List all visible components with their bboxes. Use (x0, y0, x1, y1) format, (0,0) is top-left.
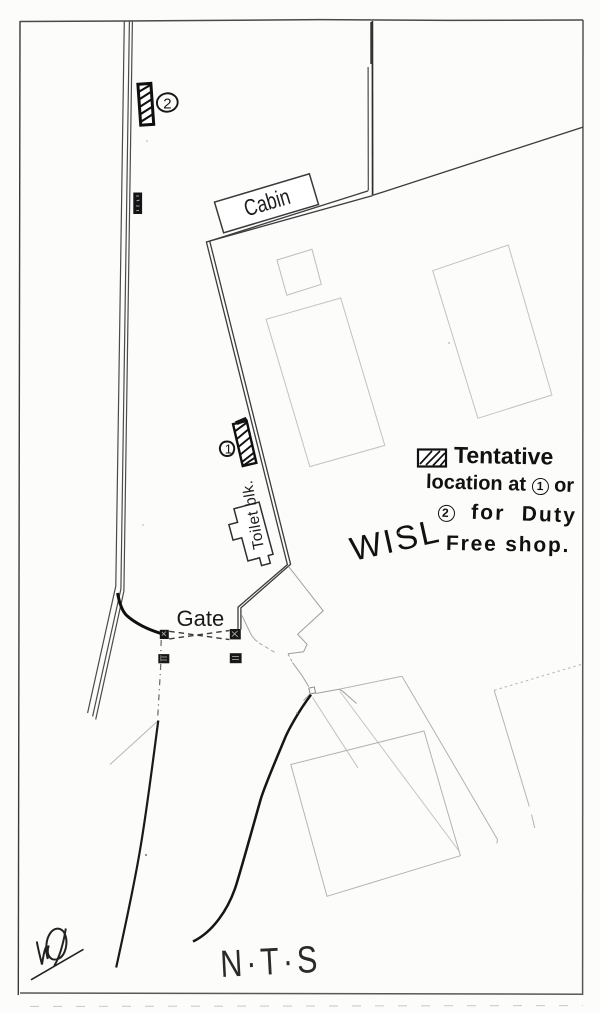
svg-text:Cabin: Cabin (241, 184, 293, 222)
svg-text:2: 2 (163, 96, 171, 113)
svg-text:1: 1 (225, 442, 232, 457)
svg-text:Gate: Gate (177, 606, 225, 631)
svg-text:N·T·S: N·T·S (219, 939, 322, 986)
svg-text:WISL: WISL (347, 513, 445, 569)
